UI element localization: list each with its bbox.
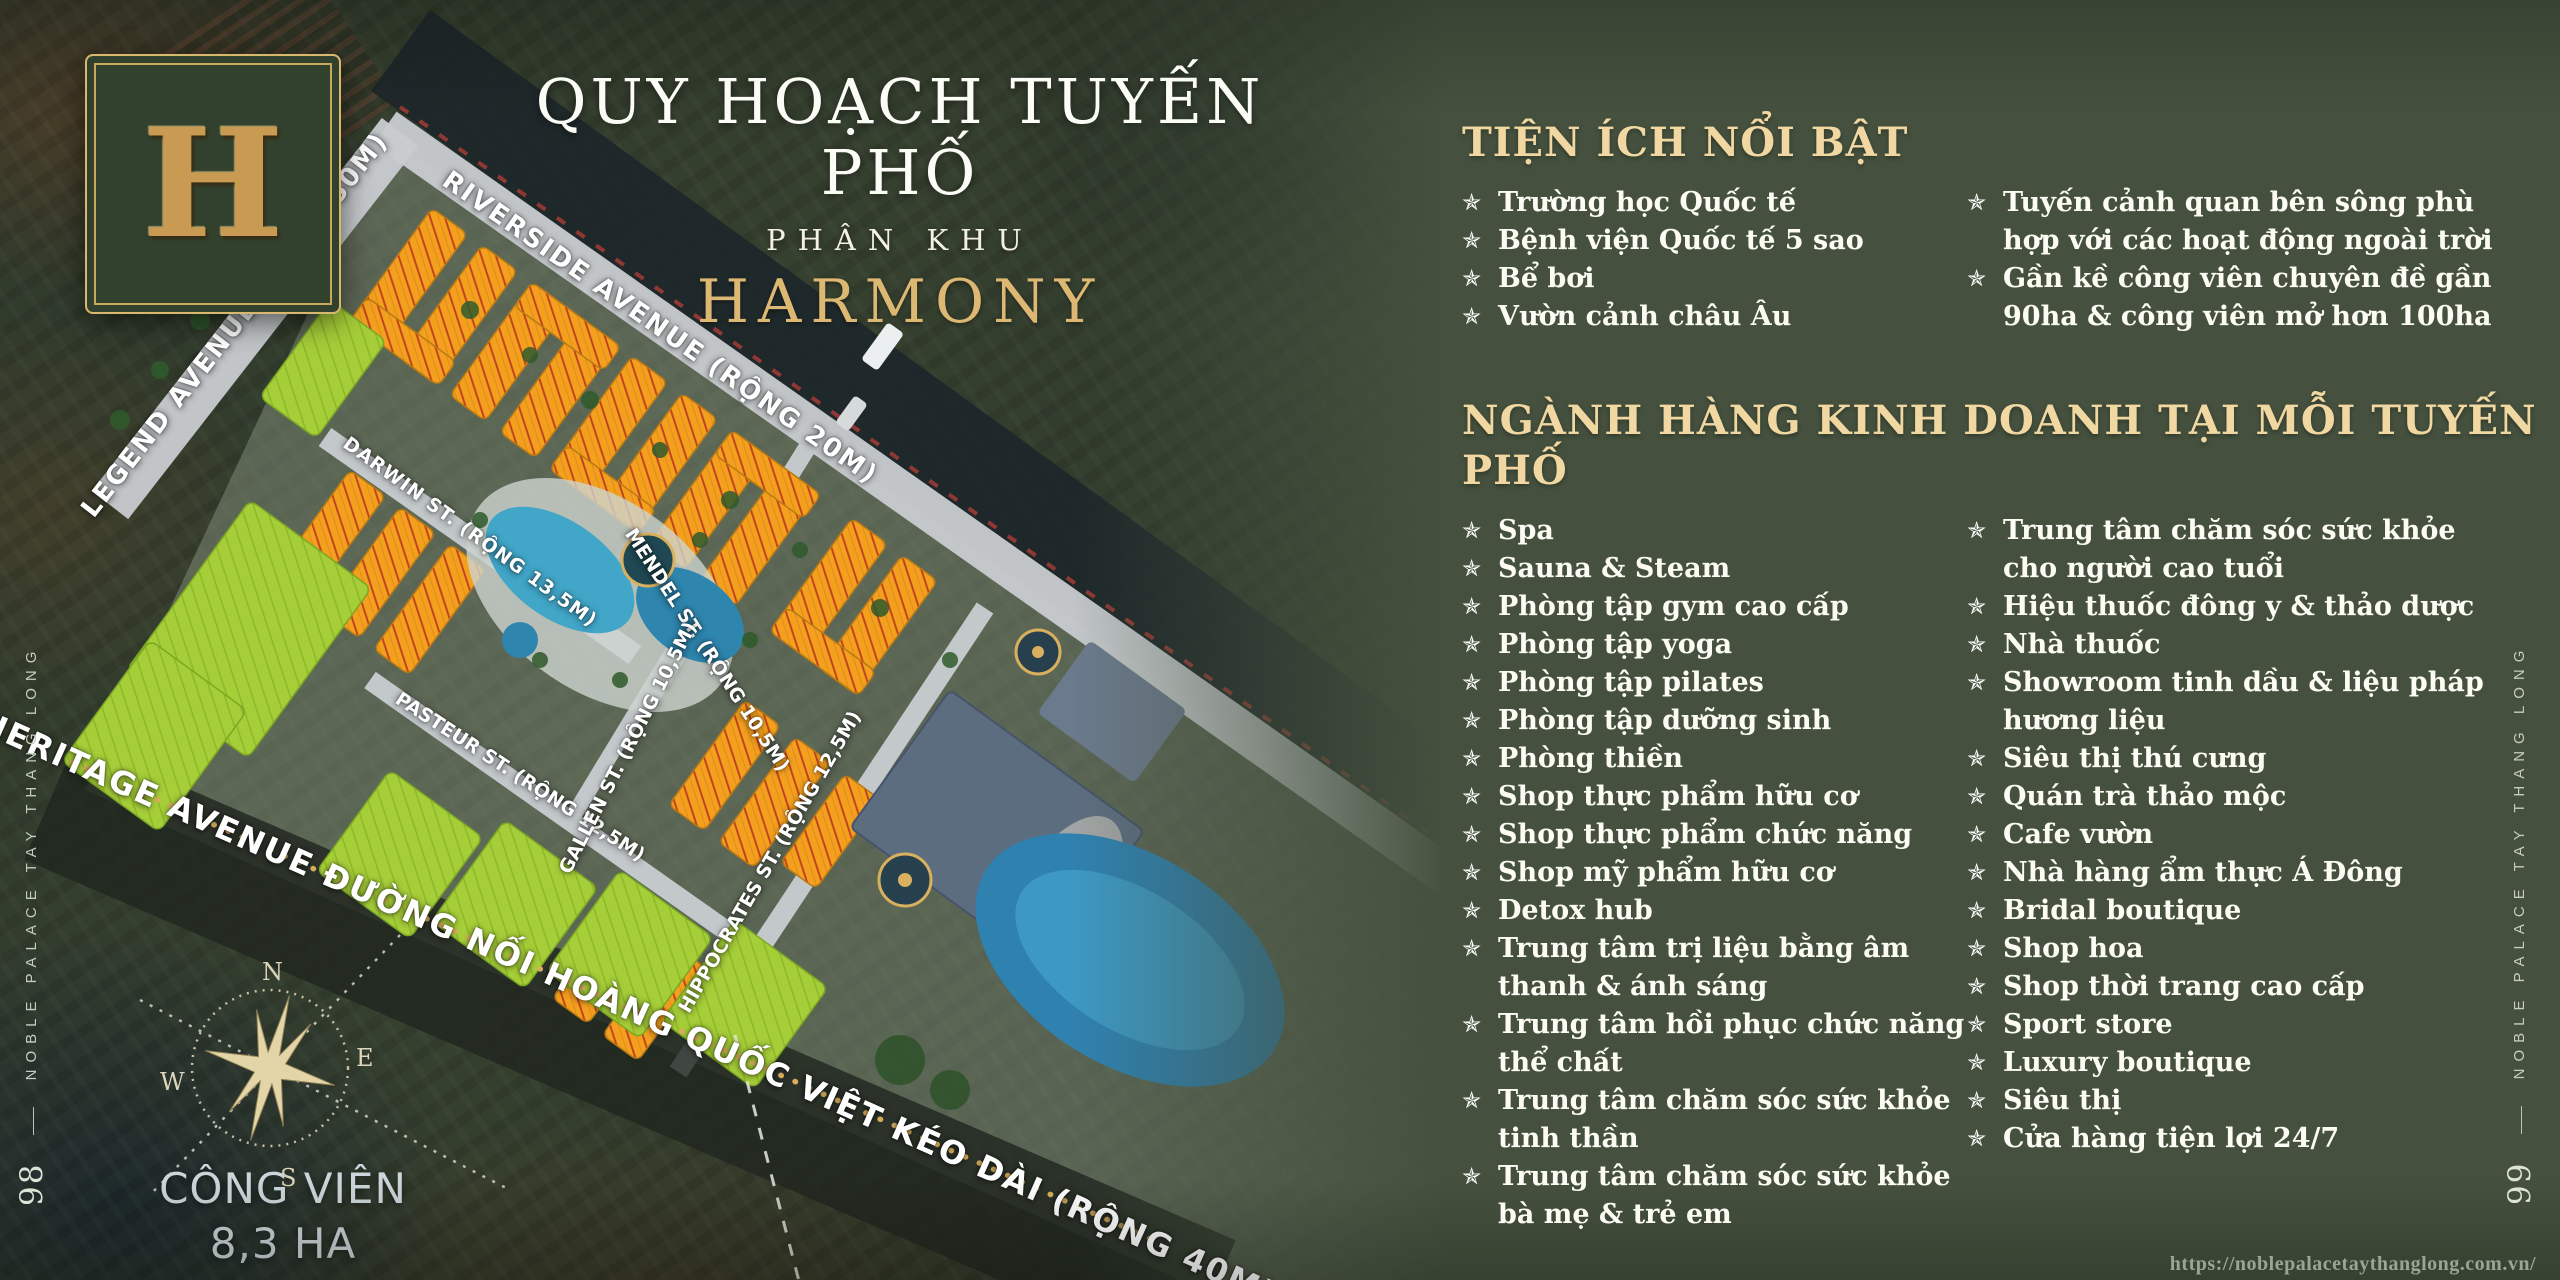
star-bullet-icon: ✯ [1967, 778, 2003, 816]
list-item: ✯ Hiệu thuốc đông y & thảo dược [1967, 588, 2527, 626]
list-item-label: Siêu thị thú cưng [2003, 740, 2266, 778]
right-page-number: 99 [2502, 1162, 2538, 1205]
list-item: ✯ Siêu thị thú cưng [1967, 740, 2527, 778]
list-item-label: Cửa hàng tiện lợi 24/7 [2003, 1120, 2339, 1158]
star-bullet-icon: ✯ [1967, 740, 2003, 778]
harmony-logo: H [85, 54, 341, 314]
list-item-label: Phòng thiền [1498, 740, 1683, 778]
list-item-label: Nhà hàng ẩm thực Á Đông [2003, 854, 2403, 892]
list-item-label: Cafe vườn [2003, 816, 2153, 854]
list-item-label: Trung tâm chăm sóc sức khỏe bà mẹ & trẻ … [1498, 1158, 1951, 1234]
list-item-label: Siêu thị [2003, 1082, 2121, 1120]
compass-w: W [160, 1068, 185, 1096]
star-bullet-icon: ✯ [1462, 1006, 1498, 1044]
star-bullet-icon: ✯ [1462, 778, 1498, 816]
compass-e: E [356, 1044, 374, 1072]
compass-rose: N E S W [150, 940, 390, 1192]
list-item: ✯ Nhà hàng ẩm thực Á Đông [1967, 854, 2527, 892]
list-item-label: Shop hoa [2003, 930, 2144, 968]
list-item: ✯ Trung tâm hồi phục chức năng thể chất [1462, 1006, 1967, 1082]
list-item: ✯ Shop thời trang cao cấp [1967, 968, 2527, 1006]
star-bullet-icon: ✯ [1462, 1158, 1498, 1196]
list-item-label: Shop thực phẩm chức năng [1498, 816, 1912, 854]
list-item: ✯ Quán trà thảo mộc [1967, 778, 2527, 816]
list-item: ✯ Shop hoa [1967, 930, 2527, 968]
list-item-label: Trung tâm chăm sóc sức khỏe cho người ca… [2003, 512, 2456, 588]
list-item-label: Phòng tập dưỡng sinh [1498, 702, 1831, 740]
list-item-label: Shop thời trang cao cấp [2003, 968, 2364, 1006]
list-item: ✯ Bể bơi [1462, 260, 1967, 298]
amenities-heading: TIỆN ÍCH NỔI BẬT [1462, 118, 2542, 168]
star-bullet-icon: ✯ [1967, 1044, 2003, 1082]
star-bullet-icon: ✯ [1967, 854, 2003, 892]
star-bullet-icon: ✯ [1462, 588, 1498, 626]
star-bullet-icon: ✯ [1462, 854, 1498, 892]
list-item-label: Spa [1498, 512, 1554, 550]
list-item-label: Quán trà thảo mộc [2003, 778, 2286, 816]
star-bullet-icon: ✯ [1462, 740, 1498, 778]
star-bullet-icon: ✯ [1462, 512, 1498, 550]
park-label: CÔNG VIÊN 8,3 HA [159, 1162, 407, 1271]
park-label-line2: 8,3 HA [159, 1217, 407, 1272]
list-item: ✯ Trung tâm chăm sóc sức khỏe tinh thần [1462, 1082, 1967, 1158]
star-bullet-icon: ✯ [1462, 184, 1498, 222]
list-item: ✯ Phòng tập pilates [1462, 664, 1967, 702]
star-bullet-icon: ✯ [1967, 968, 2003, 1006]
star-bullet-icon: ✯ [1967, 588, 2003, 626]
list-item-label: Trung tâm hồi phục chức năng thể chất [1498, 1006, 1964, 1082]
star-bullet-icon: ✯ [1967, 512, 2003, 550]
list-item-label: Shop thực phẩm hữu cơ [1498, 778, 1858, 816]
business-list-col1: ✯ Spa ✯ Sauna & Steam ✯ Phòng tập gym ca… [1462, 512, 1967, 1234]
list-item: ✯ Tuyến cảnh quan bên sông phù hợp với c… [1967, 184, 2527, 260]
list-item-label: Trung tâm chăm sóc sức khỏe tinh thần [1498, 1082, 1951, 1158]
list-item: ✯ Trung tâm chăm sóc sức khỏe cho người … [1967, 512, 2527, 588]
list-item: ✯ Trung tâm trị liệu bằng âm thanh & ánh… [1462, 930, 1967, 1006]
star-bullet-icon: ✯ [1462, 222, 1498, 260]
website-url: https://noblepalacetaythanglong.com.vn/ [2170, 1253, 2536, 1276]
list-item-label: Shop mỹ phẩm hữu cơ [1498, 854, 1834, 892]
left-page-rail: 98 —— NOBLE PALACE TAY THANG LONG [14, 436, 60, 1206]
list-item: ✯ Phòng tập gym cao cấp [1462, 588, 1967, 626]
title-subdivision-name: HARMONY [480, 267, 1320, 337]
compass-n: N [262, 958, 283, 986]
list-item-label: Showroom tinh dầu & liệu pháp hương liệu [2003, 664, 2484, 740]
list-item: ✯ Gần kề công viên chuyên đề gần 90ha & … [1967, 260, 2527, 336]
star-bullet-icon: ✯ [1462, 550, 1498, 588]
list-item-label: Phòng tập pilates [1498, 664, 1764, 702]
page-title: QUY HOẠCH TUYẾN PHỐ PHÂN KHU HARMONY [480, 66, 1320, 337]
list-item: ✯ Sauna & Steam [1462, 550, 1967, 588]
rail-brand-text: NOBLE PALACE TAY THANG LONG [23, 645, 40, 1081]
list-item: ✯ Shop thực phẩm hữu cơ [1462, 778, 1967, 816]
list-item: ✯ Detox hub [1462, 892, 1967, 930]
rail-brand-text: NOBLE PALACE TAY THANG LONG [2511, 644, 2528, 1080]
rail-dash: —— [24, 1107, 40, 1135]
list-item: ✯ Phòng tập yoga [1462, 626, 1967, 664]
amenities-list-col2: ✯ Tuyến cảnh quan bên sông phù hợp với c… [1967, 184, 2527, 336]
list-item: ✯ Shop thực phẩm chức năng [1462, 816, 1967, 854]
star-bullet-icon: ✯ [1967, 1120, 2003, 1158]
star-bullet-icon: ✯ [1462, 260, 1498, 298]
star-bullet-icon: ✯ [1462, 664, 1498, 702]
right-page-rail: 99 —— NOBLE PALACE TAY THANG LONG [2502, 430, 2548, 1205]
star-bullet-icon: ✯ [1967, 930, 2003, 968]
list-item: ✯ Bridal boutique [1967, 892, 2527, 930]
list-item-label: Phòng tập gym cao cấp [1498, 588, 1849, 626]
list-item: ✯ Trường học Quốc tế [1462, 184, 1967, 222]
list-item: ✯ Cafe vườn [1967, 816, 2527, 854]
business-list-col2: ✯ Trung tâm chăm sóc sức khỏe cho người … [1967, 512, 2527, 1234]
business-heading: NGÀNH HÀNG KINH DOANH TẠI MỖI TUYẾN PHỐ [1462, 396, 2542, 496]
list-item: ✯ Bệnh viện Quốc tế 5 sao [1462, 222, 1967, 260]
list-item: ✯ Luxury boutique [1967, 1044, 2527, 1082]
title-subdivision-label: PHÂN KHU [480, 223, 1320, 257]
list-item: ✯ Sport store [1967, 1006, 2527, 1044]
list-item-label: Vườn cảnh châu Âu [1498, 298, 1791, 336]
logo-letter: H [142, 109, 284, 259]
list-item-label: Sport store [2003, 1006, 2173, 1044]
rail-dash: —— [2512, 1106, 2528, 1134]
list-item-label: Phòng tập yoga [1498, 626, 1732, 664]
star-bullet-icon: ✯ [1967, 1082, 2003, 1120]
list-item-label: Luxury boutique [2003, 1044, 2252, 1082]
list-item-label: Bridal boutique [2003, 892, 2241, 930]
star-bullet-icon: ✯ [1967, 260, 2003, 298]
list-item: ✯ Nhà thuốc [1967, 626, 2527, 664]
star-bullet-icon: ✯ [1967, 816, 2003, 854]
list-item-label: Bể bơi [1498, 260, 1595, 298]
star-bullet-icon: ✯ [1462, 930, 1498, 968]
star-bullet-icon: ✯ [1967, 626, 2003, 664]
star-bullet-icon: ✯ [1967, 184, 2003, 222]
star-bullet-icon: ✯ [1462, 626, 1498, 664]
star-bullet-icon: ✯ [1967, 664, 2003, 702]
star-bullet-icon: ✯ [1462, 816, 1498, 854]
amenities-list-col1: ✯ Trường học Quốc tế ✯ Bệnh viện Quốc tế… [1462, 184, 1967, 336]
list-item-label: Bệnh viện Quốc tế 5 sao [1498, 222, 1864, 260]
list-item: ✯ Trung tâm chăm sóc sức khỏe bà mẹ & tr… [1462, 1158, 1967, 1234]
star-bullet-icon: ✯ [1462, 702, 1498, 740]
list-item-label: Detox hub [1498, 892, 1653, 930]
list-item-label: Nhà thuốc [2003, 626, 2160, 664]
list-item: ✯ Phòng thiền [1462, 740, 1967, 778]
title-main: QUY HOẠCH TUYẾN PHỐ [480, 66, 1320, 209]
business-section: NGÀNH HÀNG KINH DOANH TẠI MỖI TUYẾN PHỐ … [1462, 396, 2542, 1234]
list-item-label: Trường học Quốc tế [1498, 184, 1796, 222]
list-item-label: Hiệu thuốc đông y & thảo dược [2003, 588, 2474, 626]
star-bullet-icon: ✯ [1462, 1082, 1498, 1120]
star-bullet-icon: ✯ [1462, 298, 1498, 336]
list-item: ✯ Showroom tinh dầu & liệu pháp hương li… [1967, 664, 2527, 740]
star-bullet-icon: ✯ [1462, 892, 1498, 930]
list-item: ✯ Shop mỹ phẩm hữu cơ [1462, 854, 1967, 892]
list-item: ✯ Cửa hàng tiện lợi 24/7 [1967, 1120, 2527, 1158]
list-item: ✯ Phòng tập dưỡng sinh [1462, 702, 1967, 740]
list-item: ✯ Siêu thị [1967, 1082, 2527, 1120]
list-item-label: Sauna & Steam [1498, 550, 1730, 588]
brochure-page: LEGEND AVENUE (RỘNG 50M) RIVERSIDE AVENU… [0, 0, 2560, 1280]
list-item: ✯ Vườn cảnh châu Âu [1462, 298, 1967, 336]
list-item: ✯ Spa [1462, 512, 1967, 550]
amenities-section: TIỆN ÍCH NỔI BẬT ✯ Trường học Quốc tế ✯ … [1462, 118, 2542, 336]
left-page-number: 98 [14, 1163, 50, 1206]
list-item-label: Gần kề công viên chuyên đề gần 90ha & cô… [2003, 260, 2492, 336]
park-label-line1: CÔNG VIÊN [159, 1162, 407, 1217]
star-bullet-icon: ✯ [1967, 892, 2003, 930]
list-item-label: Trung tâm trị liệu bằng âm thanh & ánh s… [1498, 930, 1909, 1006]
list-item-label: Tuyến cảnh quan bên sông phù hợp với các… [2003, 184, 2492, 260]
star-bullet-icon: ✯ [1967, 1006, 2003, 1044]
